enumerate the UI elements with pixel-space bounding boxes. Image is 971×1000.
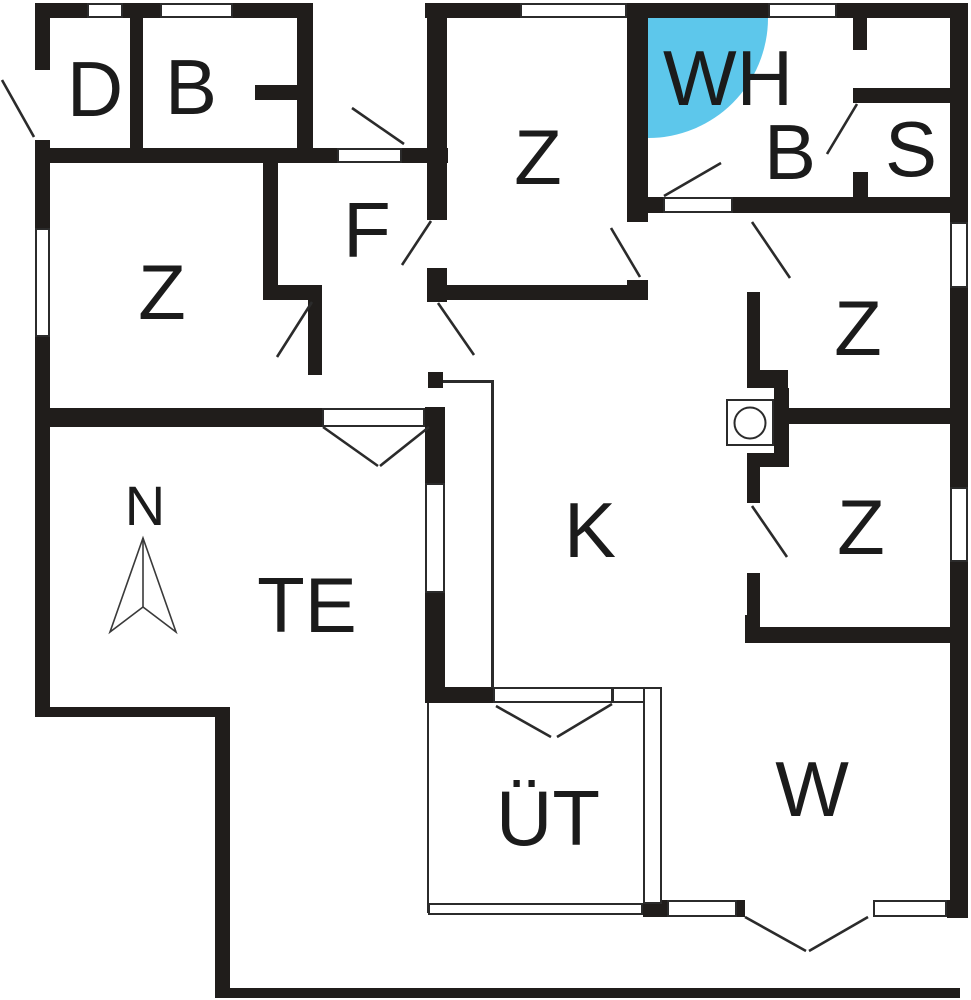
door-swing-line	[664, 163, 721, 196]
terrace-edge	[215, 988, 960, 998]
wall	[648, 197, 663, 213]
room-label-b-left: B	[165, 48, 217, 126]
wall	[263, 163, 278, 285]
wall	[627, 18, 648, 222]
wall	[627, 280, 648, 300]
wall	[123, 3, 160, 18]
wall	[747, 370, 788, 388]
room-label-f: F	[343, 191, 391, 269]
door-threshold	[337, 148, 402, 163]
wall	[853, 172, 868, 197]
door-swing-line	[323, 427, 378, 466]
wall	[35, 408, 322, 427]
room-label-w: W	[775, 750, 849, 828]
wall	[35, 337, 50, 717]
wall	[428, 372, 443, 388]
terrace-edge	[35, 707, 230, 717]
wall	[947, 900, 968, 918]
wall	[425, 407, 445, 483]
washer-drum-icon	[734, 406, 767, 439]
wall	[950, 562, 968, 918]
area-boundary-line	[491, 380, 494, 688]
door-swing-line	[827, 104, 857, 154]
door-swing-line	[557, 704, 612, 737]
door-swing-line	[745, 917, 806, 951]
room-label-z-right-lower: Z	[837, 488, 885, 566]
room-label-s: S	[885, 110, 937, 188]
wall	[35, 148, 337, 163]
window	[950, 222, 968, 288]
wall	[425, 687, 493, 703]
wall	[853, 88, 953, 103]
wall	[853, 18, 867, 50]
window	[643, 687, 662, 904]
washing-machine-icon	[726, 399, 774, 446]
door-swing-line	[352, 108, 404, 144]
wall	[308, 300, 322, 375]
window	[873, 900, 947, 917]
wall	[263, 285, 322, 300]
room-label-z-right-upper: Z	[834, 289, 882, 367]
room-label-b-right: B	[764, 113, 816, 191]
wall	[737, 900, 745, 917]
door-swing-line	[402, 221, 431, 265]
door-swing-line	[496, 706, 551, 737]
room-label-d: D	[67, 50, 123, 128]
room-label-z-left: Z	[138, 253, 186, 331]
door-swing-line	[277, 302, 312, 357]
compass-label: N	[125, 478, 165, 534]
room-label-ut: ÜT	[496, 779, 600, 857]
door-swing-line	[809, 917, 868, 951]
wall	[950, 3, 968, 222]
room-label-z-top: Z	[514, 118, 562, 196]
window	[160, 3, 233, 18]
wall	[35, 3, 50, 70]
window	[87, 3, 123, 18]
door-threshold	[322, 408, 425, 427]
window	[425, 483, 445, 593]
room-label-k: K	[564, 491, 616, 569]
wall	[255, 85, 297, 100]
wall	[733, 197, 953, 213]
wall	[950, 288, 968, 487]
floor-plan: D B Z F Z WH B S Z Z K TE ÜT W N	[0, 0, 971, 1000]
door-threshold	[663, 197, 733, 213]
wall	[774, 408, 950, 424]
door-swing-line	[752, 222, 790, 278]
wall	[427, 285, 648, 300]
window	[520, 3, 627, 18]
terrace-edge	[215, 707, 230, 993]
area-boundary-line	[443, 380, 493, 383]
wall	[297, 3, 313, 163]
room-label-te: TE	[257, 566, 357, 644]
wall	[745, 627, 950, 643]
room-label-wh: WH	[663, 39, 793, 117]
door-swing-line	[380, 427, 429, 466]
door-swing-line	[438, 303, 474, 355]
door-swing-line	[2, 80, 34, 137]
wall	[747, 292, 760, 372]
door-threshold	[493, 687, 613, 703]
door-swing-line	[611, 228, 640, 277]
wall	[130, 18, 143, 150]
door-swing-line	[752, 506, 787, 557]
wall	[747, 453, 789, 467]
window	[667, 900, 737, 917]
window	[35, 228, 50, 337]
wall	[427, 3, 447, 220]
terrace-step	[428, 903, 643, 915]
wall	[627, 3, 768, 18]
window	[950, 487, 968, 562]
area-boundary-line	[427, 703, 429, 913]
wall	[425, 593, 445, 697]
wall	[837, 3, 953, 18]
window	[768, 3, 837, 18]
wall	[747, 467, 760, 503]
